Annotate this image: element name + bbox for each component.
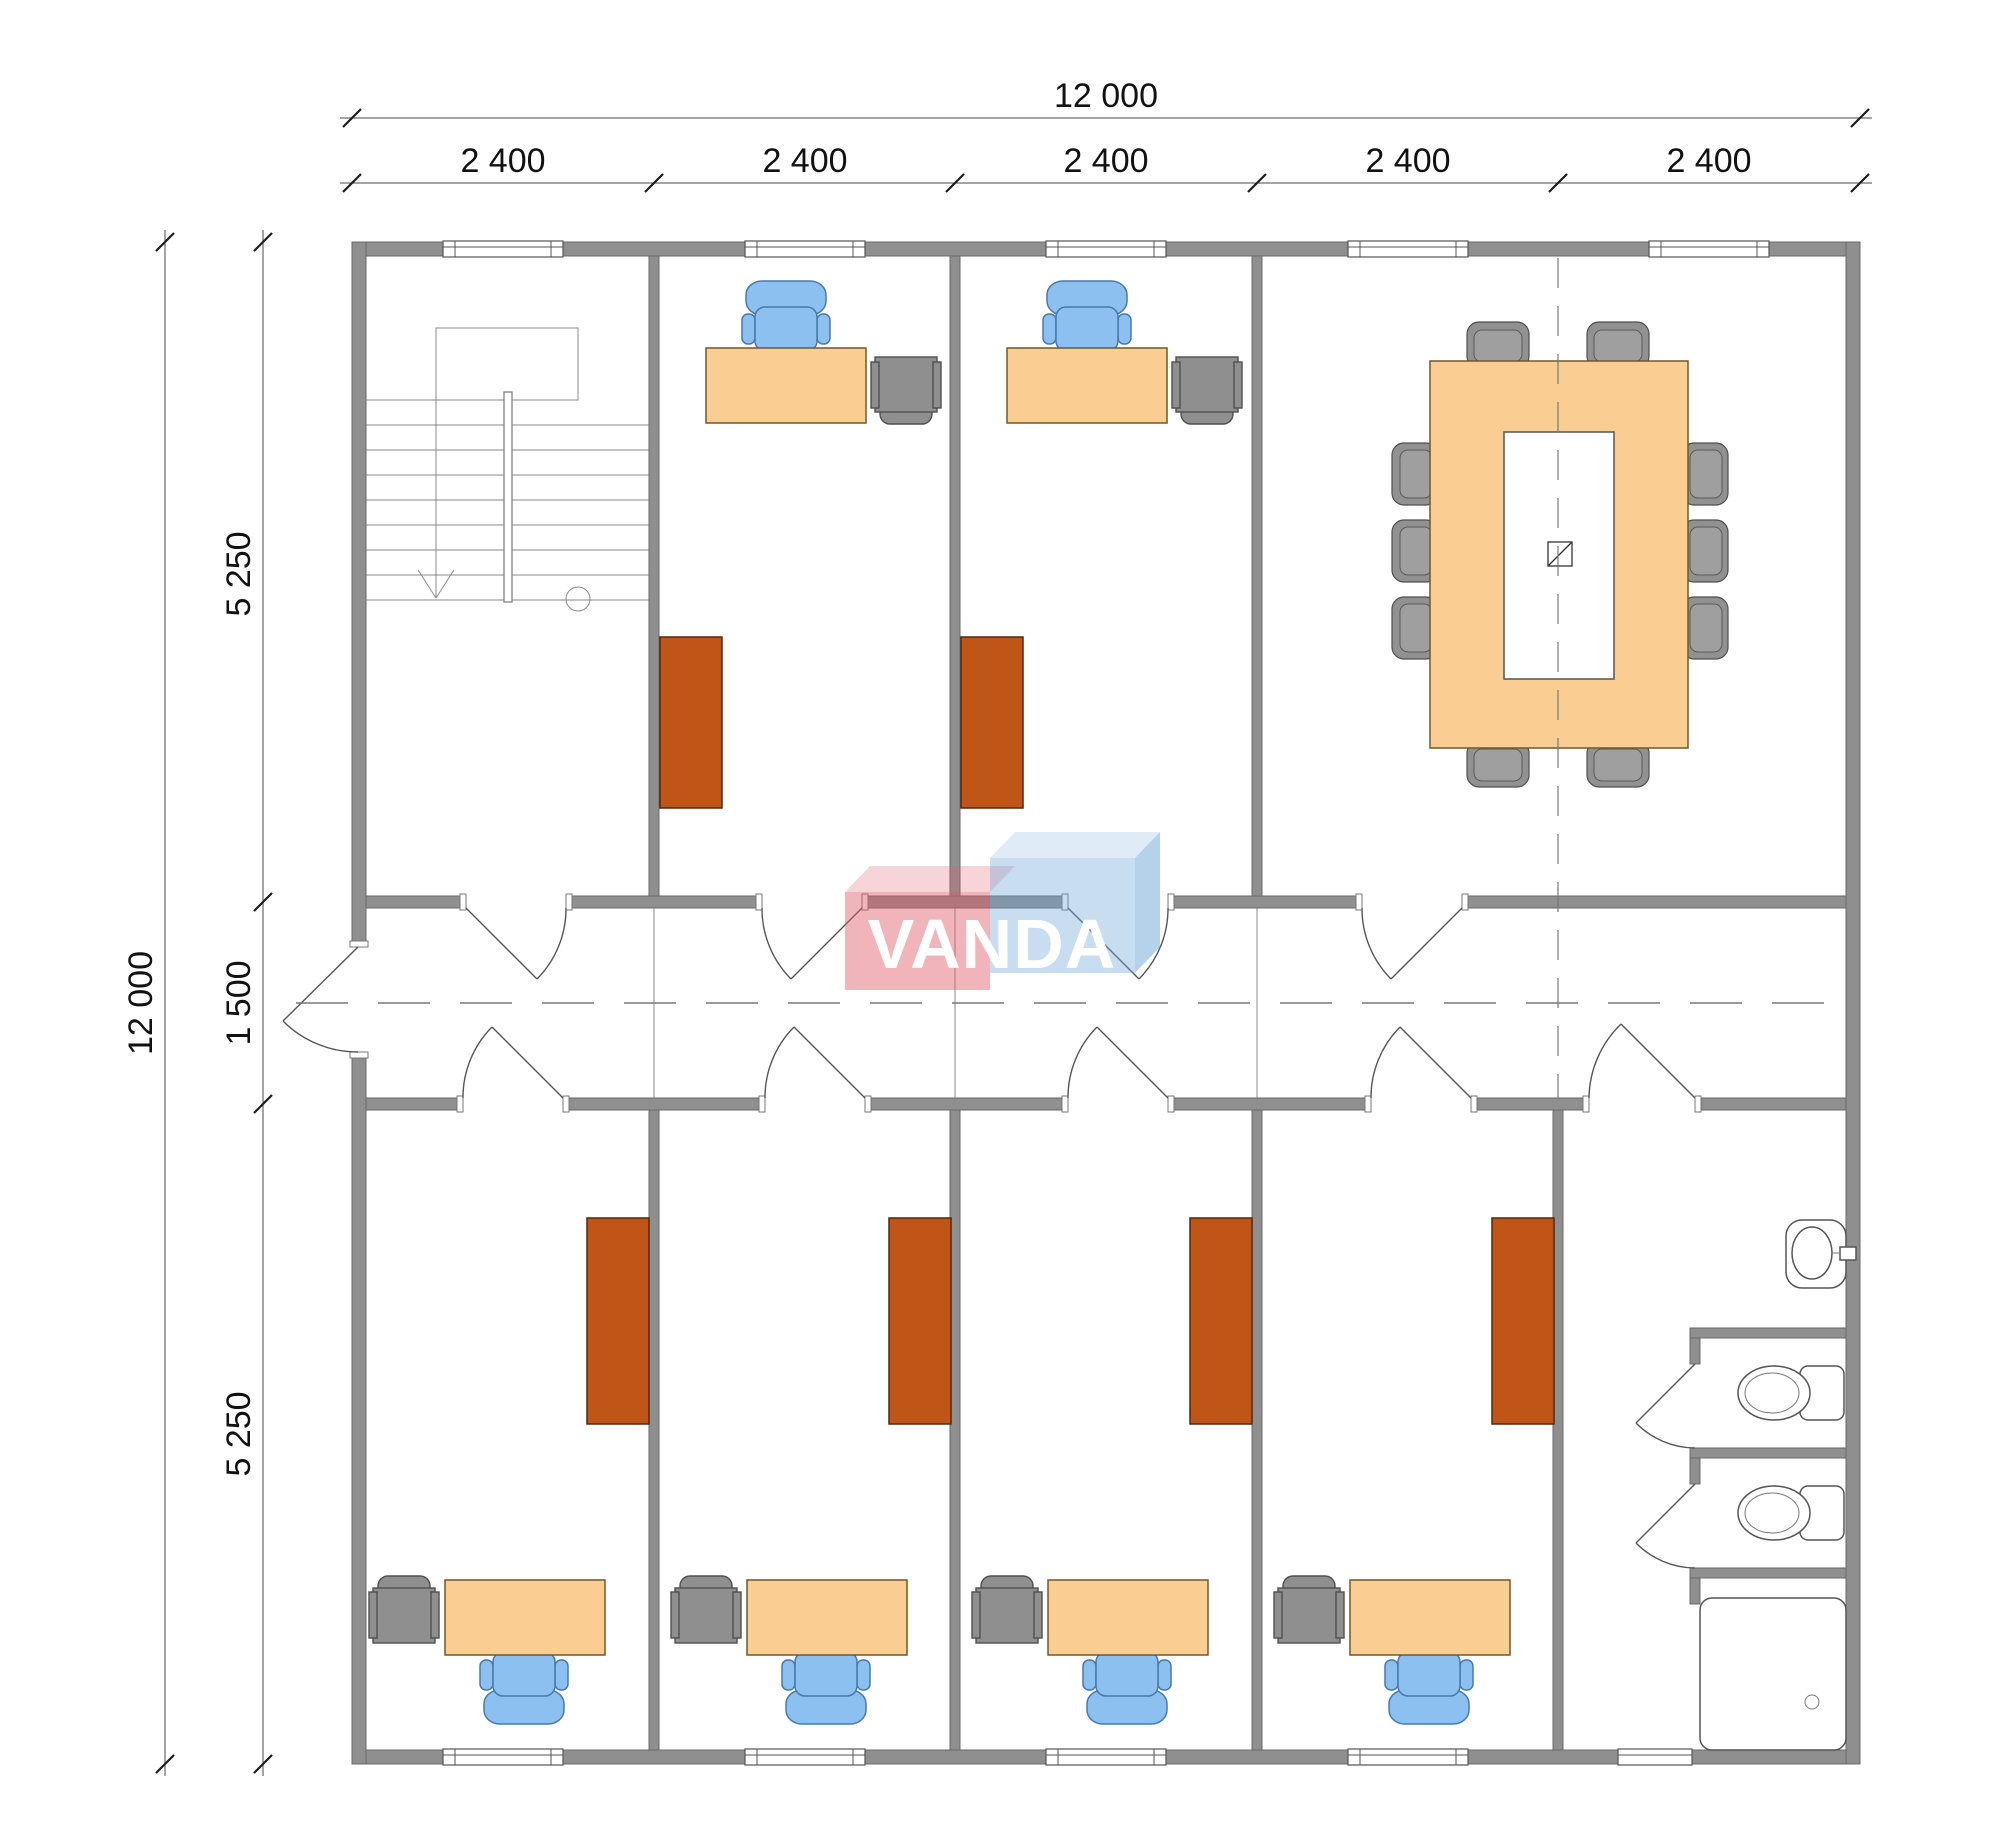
- window: [1348, 241, 1468, 257]
- door-swing: [1589, 1024, 1695, 1098]
- window: [1046, 1749, 1166, 1765]
- logo-text: VANDA: [868, 905, 1117, 983]
- dim-bay-2: 2 400: [762, 142, 847, 180]
- stair-railing: [504, 392, 512, 602]
- dim-bay-5: 2 400: [1666, 142, 1751, 180]
- sink: [1786, 1220, 1856, 1288]
- toilet: [1738, 1486, 1844, 1540]
- window: [1618, 1749, 1692, 1765]
- stairs: [366, 328, 649, 611]
- stall-door-swing: [1636, 1484, 1695, 1568]
- dimension-top-overall: 12 000: [340, 77, 1872, 127]
- stair-start-symbol: [566, 587, 590, 611]
- vanda-logo: VANDA: [845, 832, 1160, 990]
- window: [745, 1749, 865, 1765]
- desk-workstation: [660, 281, 941, 808]
- dimension-top-segments: 2 400 2 400 2 400 2 400 2 400: [340, 142, 1872, 192]
- desk-workstation: [671, 1218, 951, 1724]
- desk-workstation: [369, 1218, 649, 1724]
- logo-pink-flap: [845, 866, 1015, 892]
- bathroom: [1700, 1220, 1856, 1750]
- conference-chair: [1682, 597, 1728, 659]
- door-swing: [463, 1027, 563, 1098]
- entrance-door-swing: [283, 947, 358, 1052]
- conference-chair: [1682, 443, 1728, 505]
- window: [443, 241, 563, 257]
- dim-bay-3: 2 400: [1063, 142, 1148, 180]
- conference-chair: [1682, 520, 1728, 582]
- logo-blue-flap: [990, 832, 1160, 858]
- exterior-wall-right: [1846, 242, 1860, 1764]
- dim-overall-height: 12 000: [122, 951, 160, 1055]
- shower-tray: [1700, 1598, 1846, 1750]
- window: [443, 1749, 563, 1765]
- window: [1348, 1749, 1468, 1765]
- door-swing: [1371, 1027, 1471, 1098]
- dim-overall-width: 12 000: [1054, 77, 1158, 115]
- dimension-left-segments: 5 250 1 500 5 250: [220, 230, 272, 1776]
- dim-row-3: 5 250: [220, 1391, 258, 1476]
- conference-room: [1392, 322, 1728, 787]
- floor-plan-drawing: 12 000 2 400 2 400 2 400 2 400 2 400 12 …: [0, 0, 2000, 1848]
- door-swing: [466, 908, 566, 979]
- window: [745, 241, 865, 257]
- stair-direction-arrow: [418, 400, 454, 598]
- stall-door-swing: [1636, 1364, 1695, 1448]
- door-swing: [765, 1027, 865, 1098]
- desk-workstation: [1274, 1218, 1554, 1724]
- dim-row-2: 1 500: [220, 960, 258, 1045]
- door-swing: [1362, 908, 1462, 979]
- desk-workstation: [961, 281, 1242, 808]
- column-symbol: [1548, 542, 1572, 566]
- exterior-wall-left-lower: [352, 1052, 366, 1764]
- desk-workstation: [972, 1218, 1252, 1724]
- doors: [283, 908, 1695, 1568]
- dim-bay-4: 2 400: [1365, 142, 1450, 180]
- door-swing: [1068, 1027, 1168, 1098]
- toilet: [1738, 1366, 1844, 1420]
- dim-row-1: 5 250: [220, 531, 258, 616]
- window: [1046, 241, 1166, 257]
- window: [1649, 241, 1769, 257]
- dimension-left-overall: 12 000: [122, 230, 174, 1776]
- dim-bay-1: 2 400: [460, 142, 545, 180]
- floor-plan-page: 12 000 2 400 2 400 2 400 2 400 2 400 12 …: [0, 0, 2000, 1848]
- exterior-wall-left-upper: [352, 242, 366, 947]
